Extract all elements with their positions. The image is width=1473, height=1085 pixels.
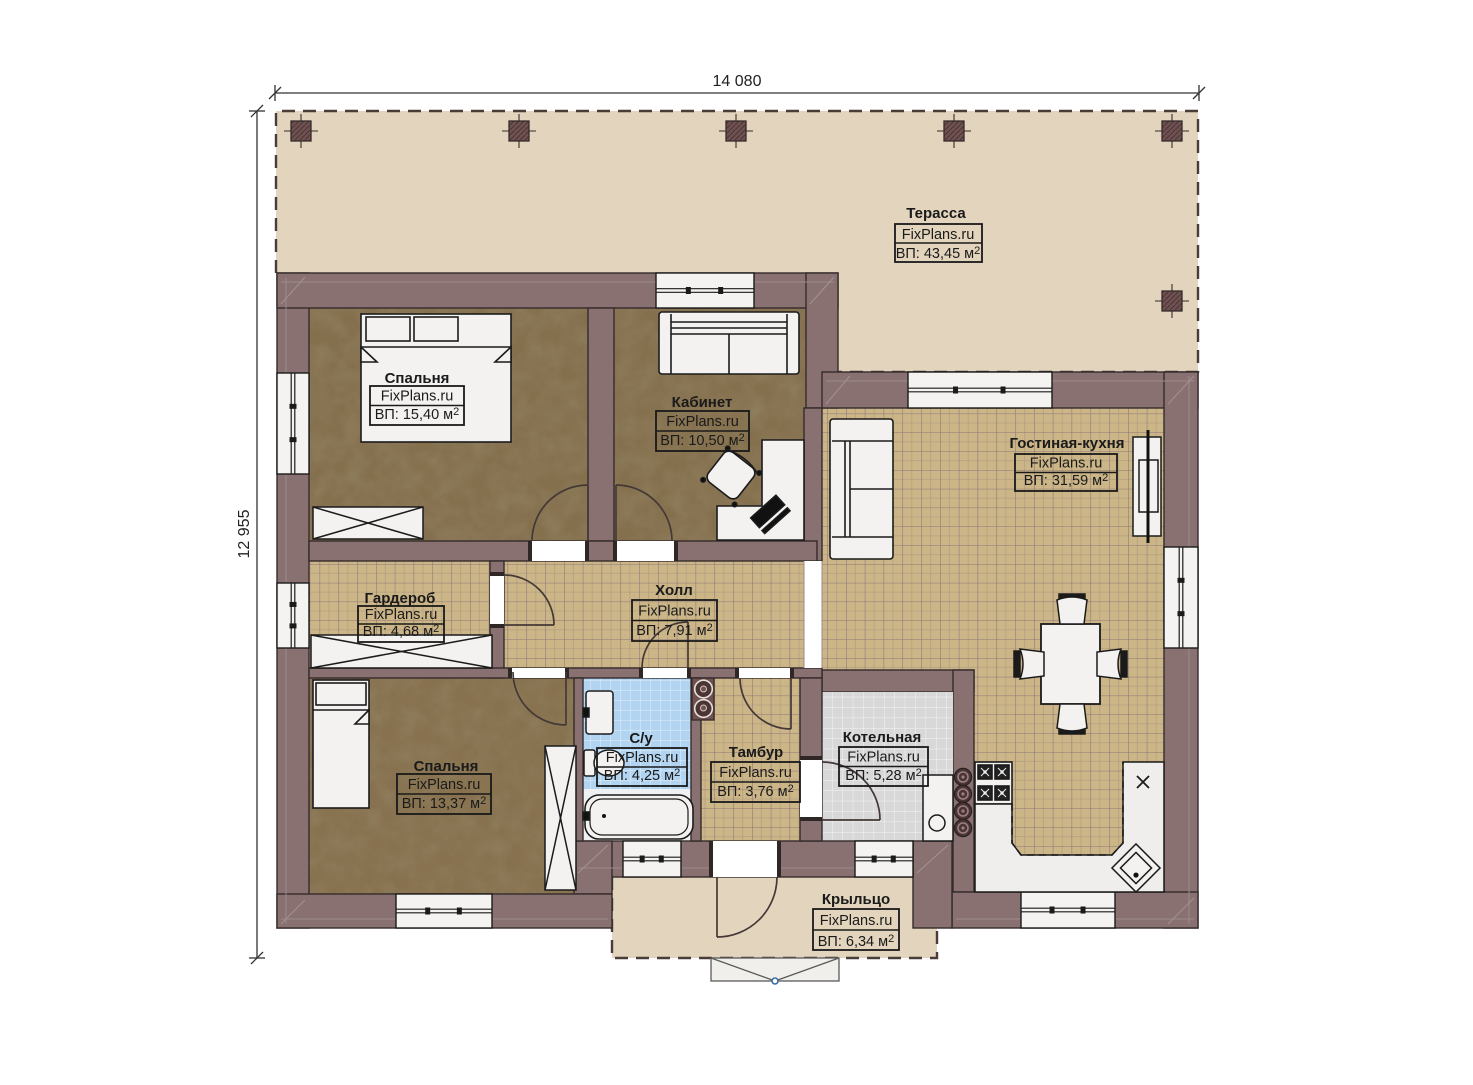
svg-text:FixPlans.ru: FixPlans.ru: [638, 604, 711, 620]
svg-text:ВП: 7,91 м2: ВП: 7,91 м2: [636, 622, 713, 639]
svg-text:Гостиная-кухня: Гостиная-кухня: [1010, 435, 1125, 452]
svg-text:Котельная: Котельная: [843, 729, 922, 746]
svg-text:ВП: 43,45 м2: ВП: 43,45 м2: [896, 245, 981, 262]
svg-text:ВП: 31,59 м2: ВП: 31,59 м2: [1024, 472, 1109, 489]
svg-text:FixPlans.ru: FixPlans.ru: [820, 913, 893, 929]
svg-text:FixPlans.ru: FixPlans.ru: [408, 777, 481, 793]
svg-text:ВП: 13,37 м2: ВП: 13,37 м2: [402, 795, 487, 812]
svg-text:FixPlans.ru: FixPlans.ru: [666, 414, 739, 430]
svg-text:ВП: 4,68 м2: ВП: 4,68 м2: [363, 623, 440, 640]
svg-text:Крыльцо: Крыльцо: [822, 891, 890, 908]
svg-text:ВП: 10,50 м2: ВП: 10,50 м2: [660, 432, 745, 449]
svg-text:14 080: 14 080: [713, 73, 762, 90]
svg-text:FixPlans.ru: FixPlans.ru: [902, 227, 975, 243]
svg-text:Холл: Холл: [655, 582, 693, 599]
svg-text:FixPlans.ru: FixPlans.ru: [365, 607, 438, 623]
svg-text:С/у: С/у: [629, 730, 653, 747]
svg-text:Терасса: Терасса: [906, 205, 966, 222]
svg-text:FixPlans.ru: FixPlans.ru: [847, 750, 920, 766]
svg-text:Спальня: Спальня: [414, 758, 479, 775]
svg-text:12 955: 12 955: [236, 509, 253, 558]
svg-text:FixPlans.ru: FixPlans.ru: [719, 765, 792, 781]
svg-text:FixPlans.ru: FixPlans.ru: [606, 750, 679, 766]
svg-text:FixPlans.ru: FixPlans.ru: [1030, 456, 1103, 472]
svg-text:ВП: 3,76 м2: ВП: 3,76 м2: [717, 783, 794, 800]
svg-text:Кабинет: Кабинет: [672, 394, 733, 411]
svg-text:ВП: 4,25 м2: ВП: 4,25 м2: [604, 767, 681, 784]
svg-text:ВП: 15,40 м2: ВП: 15,40 м2: [375, 406, 460, 423]
svg-text:ВП: 5,28 м2: ВП: 5,28 м2: [845, 767, 922, 784]
svg-text:ВП: 6,34 м2: ВП: 6,34 м2: [818, 933, 895, 950]
svg-text:Спальня: Спальня: [385, 370, 450, 387]
svg-text:Гардероб: Гардероб: [365, 590, 436, 607]
svg-text:Тамбур: Тамбур: [729, 744, 783, 761]
svg-text:FixPlans.ru: FixPlans.ru: [381, 389, 454, 405]
